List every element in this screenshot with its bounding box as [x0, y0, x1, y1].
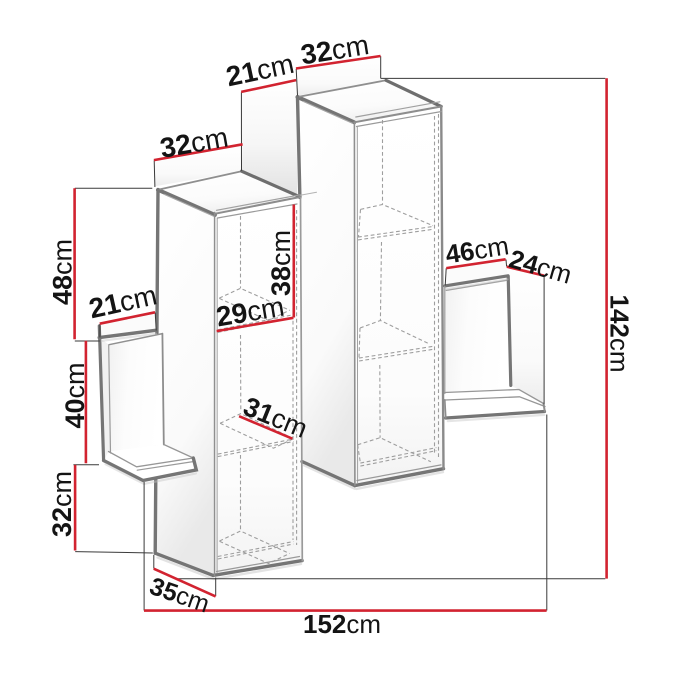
svg-text:48cm: 48cm: [48, 239, 78, 305]
svg-text:152cm: 152cm: [303, 609, 381, 639]
svg-text:38cm: 38cm: [266, 230, 296, 296]
svg-text:40cm: 40cm: [60, 362, 90, 428]
svg-text:142cm: 142cm: [605, 295, 635, 373]
svg-text:32cm: 32cm: [47, 471, 77, 537]
